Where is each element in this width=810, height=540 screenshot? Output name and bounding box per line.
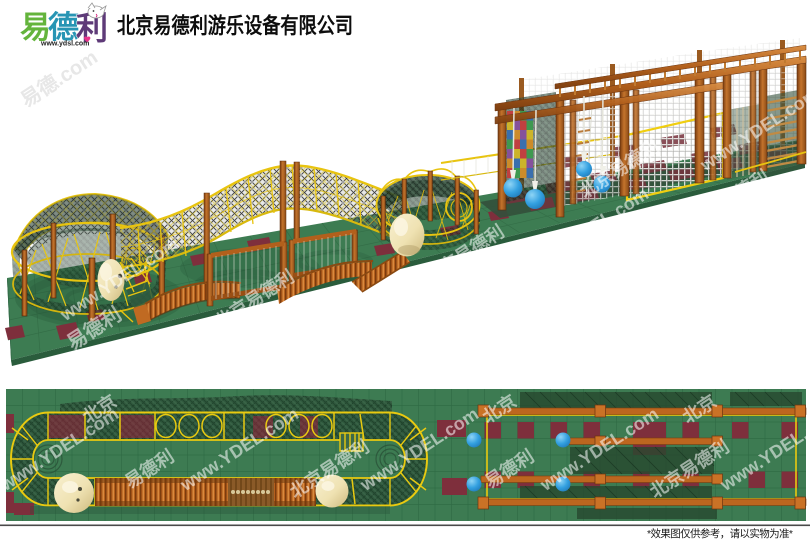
svg-text:*效果图仅供参考，请以实物为准*: *效果图仅供参考，请以实物为准* [647, 527, 793, 540]
svg-text:www.ydsl.com: www.ydsl.com [40, 41, 89, 48]
svg-text:北京易德利游乐设备有限公司: 北京易德利游乐设备有限公司 [117, 12, 353, 38]
